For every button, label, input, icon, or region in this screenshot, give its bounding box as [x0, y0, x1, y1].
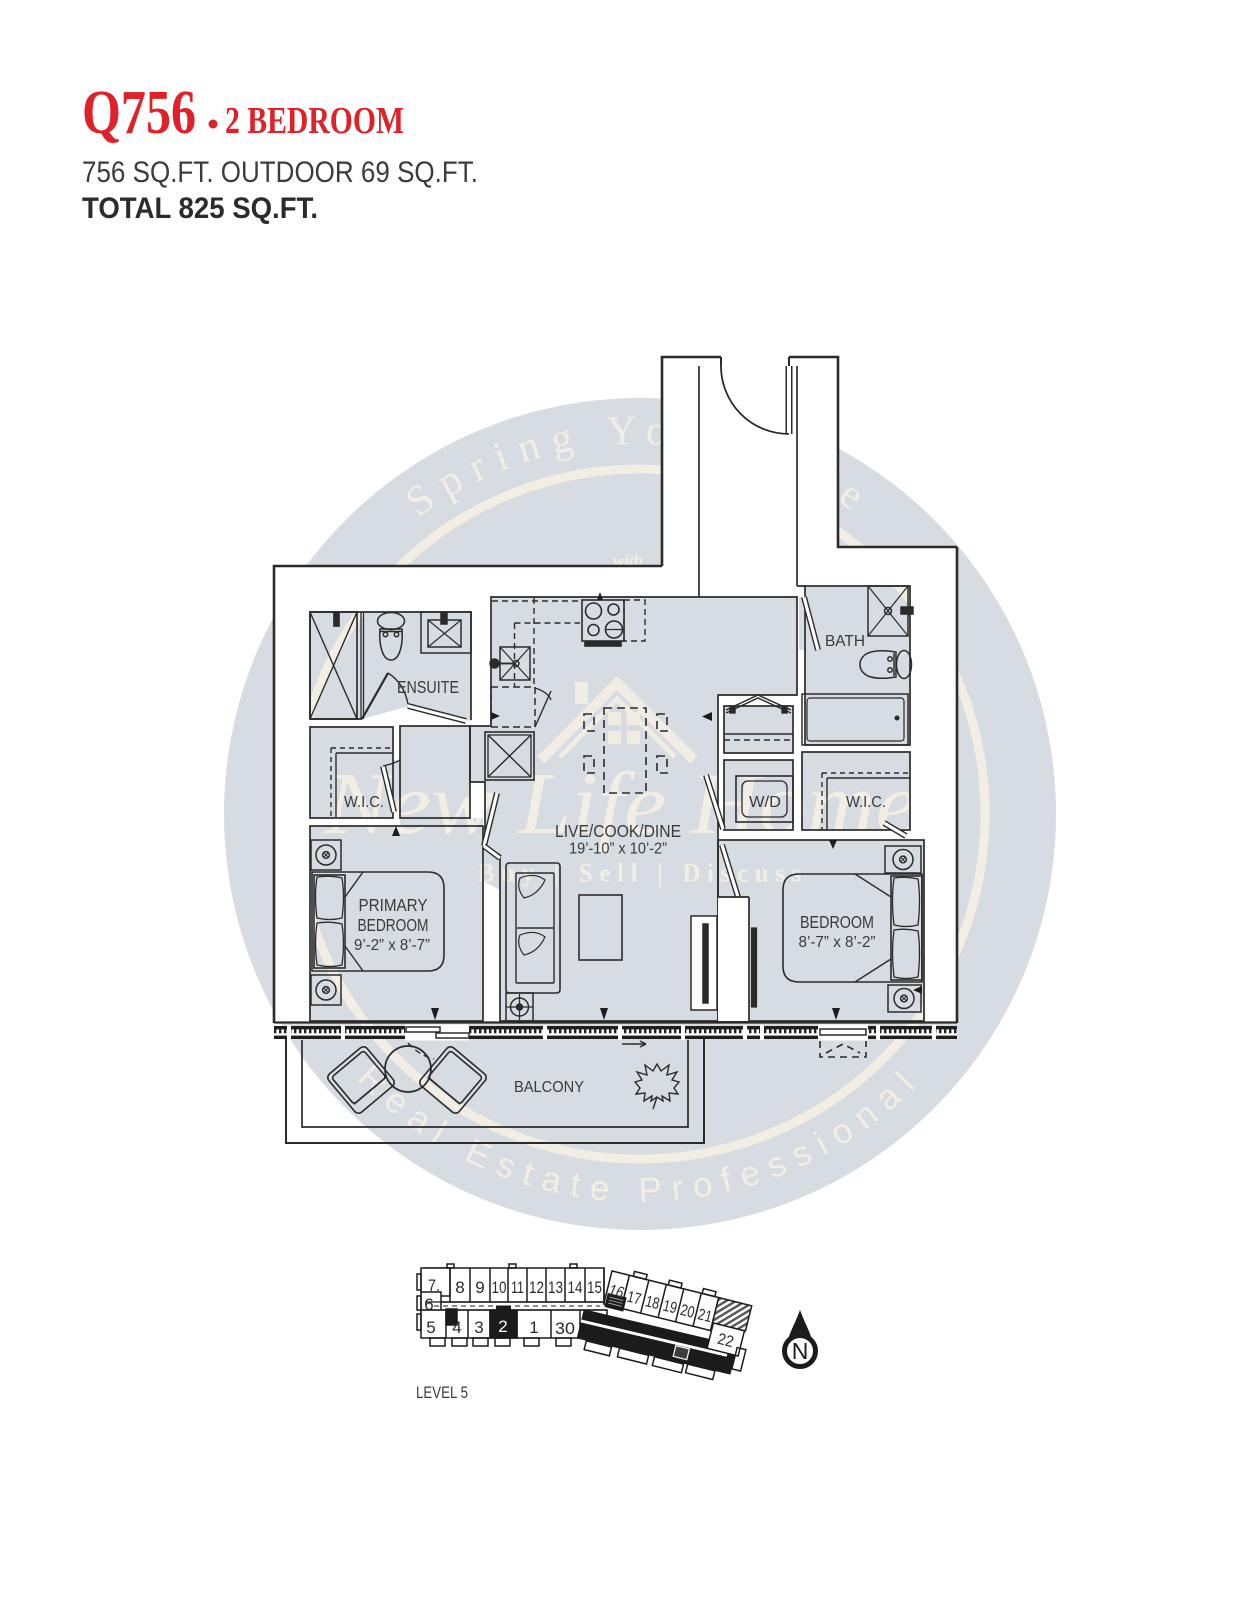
svg-text:TOTAL 825 SQ.FT.: TOTAL 825 SQ.FT. [82, 192, 318, 225]
svg-text:19’-10” x 10’-2”: 19’-10” x 10’-2” [569, 841, 667, 858]
svg-text:PRIMARY: PRIMARY [359, 895, 428, 915]
svg-text:8: 8 [455, 1278, 464, 1297]
svg-text:12: 12 [529, 1278, 544, 1297]
svg-text:LIVE/COOK/DINE: LIVE/COOK/DINE [555, 821, 681, 841]
svg-text:756 SQ.FT. OUTDOOR 69 SQ.FT.: 756 SQ.FT. OUTDOOR 69 SQ.FT. [82, 156, 478, 189]
svg-text:15: 15 [587, 1278, 602, 1297]
svg-text:LEVEL 5: LEVEL 5 [416, 1383, 468, 1402]
svg-text:9: 9 [475, 1278, 484, 1297]
svg-text:4: 4 [452, 1318, 461, 1337]
svg-text:3: 3 [474, 1318, 483, 1337]
svg-text:30: 30 [555, 1319, 575, 1338]
svg-text:8’-7” x 8’-2”: 8’-7” x 8’-2” [799, 934, 876, 951]
svg-text:7.: 7. [428, 1276, 440, 1295]
svg-text:ENSUITE: ENSUITE [397, 677, 459, 697]
svg-text:9’-2” x 8’-7”: 9’-2” x 8’-7” [354, 937, 430, 954]
svg-text:W.I.C.: W.I.C. [846, 794, 886, 811]
svg-text:W.I.C.: W.I.C. [344, 794, 384, 811]
svg-text:5: 5 [426, 1318, 435, 1337]
svg-text:13: 13 [548, 1278, 563, 1297]
svg-text:BATH: BATH [825, 633, 865, 650]
svg-text:BEDROOM: BEDROOM [800, 912, 874, 932]
svg-text:BEDROOM: BEDROOM [358, 915, 429, 935]
svg-text:BALCONY: BALCONY [514, 1079, 584, 1096]
svg-text:10: 10 [492, 1278, 507, 1297]
svg-text:1: 1 [529, 1318, 538, 1337]
svg-text:Q756: Q756 [82, 79, 196, 147]
svg-text:11: 11 [511, 1278, 524, 1297]
svg-text:W/D: W/D [749, 794, 781, 811]
svg-text:14: 14 [568, 1278, 583, 1297]
svg-text:2 BEDROOM: 2 BEDROOM [225, 100, 404, 142]
svg-text:N: N [792, 1338, 809, 1364]
svg-text:2: 2 [498, 1317, 507, 1336]
svg-text:6: 6 [424, 1295, 433, 1314]
